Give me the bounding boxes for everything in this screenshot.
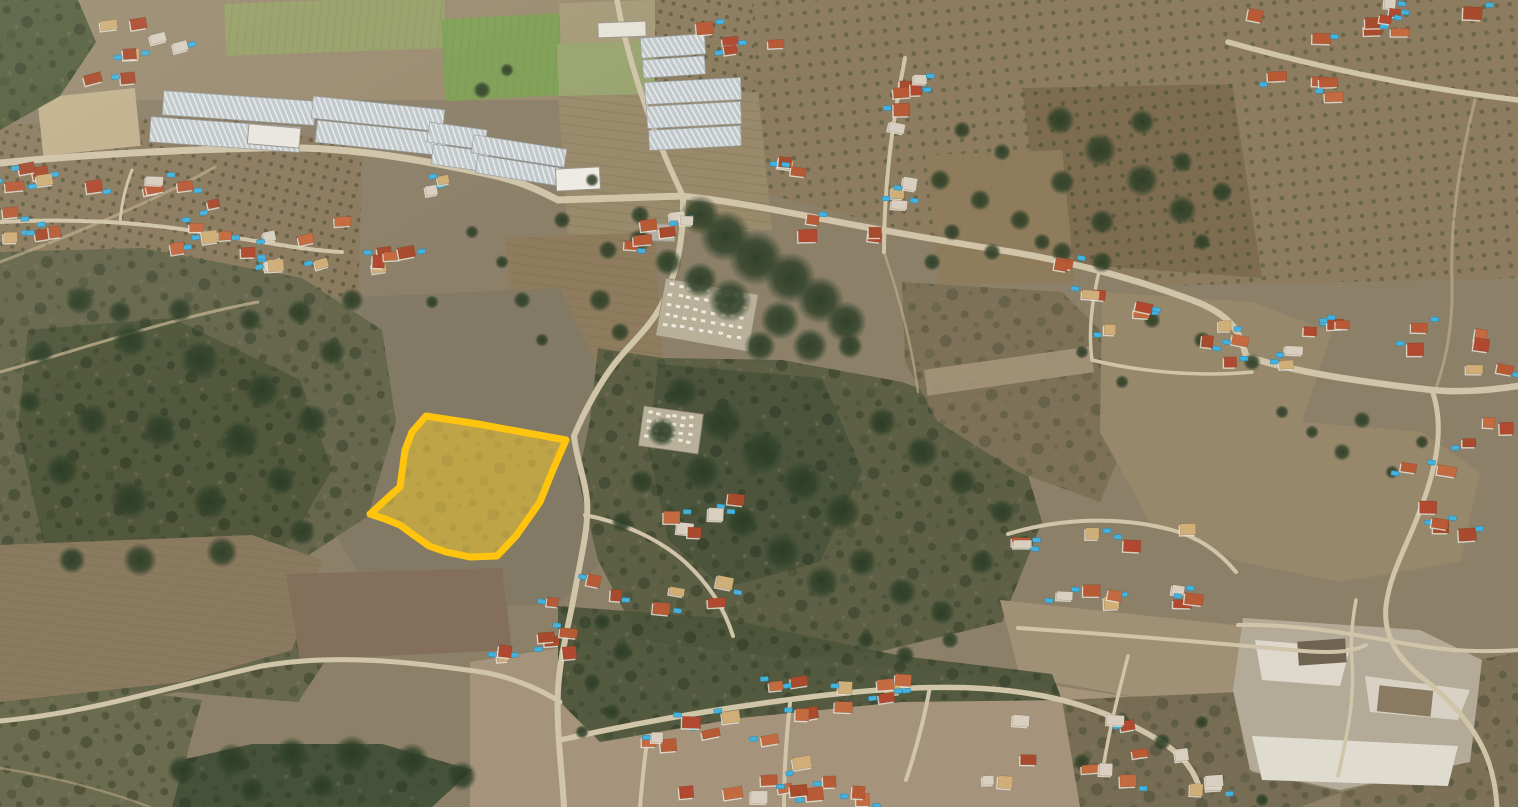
swimming-pool xyxy=(776,784,784,789)
tree-clump xyxy=(1115,375,1129,389)
tree-clump xyxy=(1129,109,1155,135)
tree-clump xyxy=(837,333,863,359)
tree-clump xyxy=(683,453,721,491)
swimming-pool xyxy=(868,696,877,702)
house xyxy=(1204,775,1224,789)
swimming-pool xyxy=(1276,353,1284,358)
tree-clump xyxy=(610,322,630,342)
tree-clump xyxy=(495,255,509,269)
swimming-pool xyxy=(637,248,645,253)
swimming-pool xyxy=(796,797,804,802)
tree-clump xyxy=(513,291,531,309)
swimming-pool xyxy=(1319,318,1327,323)
tree-clump xyxy=(1009,209,1031,231)
swimming-pool xyxy=(1225,791,1233,796)
tree-clump xyxy=(112,322,148,358)
swimming-pool xyxy=(182,218,190,223)
swimming-pool xyxy=(1071,286,1079,291)
house xyxy=(996,775,1013,790)
swimming-pool xyxy=(716,19,724,24)
swimming-pool xyxy=(673,608,681,613)
swimming-pool xyxy=(1486,3,1494,8)
greenhouse xyxy=(644,78,741,105)
swimming-pool xyxy=(1391,471,1400,477)
swimming-pool xyxy=(232,235,240,240)
swimming-pool xyxy=(114,55,122,60)
tree-clump xyxy=(792,328,828,364)
house xyxy=(1019,755,1036,767)
tree-clump xyxy=(588,288,612,312)
farm-building xyxy=(247,124,301,148)
tree-clump xyxy=(333,735,371,773)
tree-clump xyxy=(1333,443,1351,461)
swimming-pool xyxy=(1396,341,1404,346)
swimming-pool xyxy=(21,216,29,221)
swimming-pool xyxy=(738,40,746,45)
swimming-pool xyxy=(840,794,848,799)
tree-clump xyxy=(296,404,328,436)
tree-clump xyxy=(220,420,260,460)
swimming-pool xyxy=(923,87,931,92)
swimming-pool xyxy=(926,74,934,79)
tree-clump xyxy=(629,469,655,495)
tree-clump xyxy=(665,375,699,409)
tree-clump xyxy=(611,641,633,663)
house xyxy=(981,776,994,787)
tree-clump xyxy=(1193,233,1211,251)
house xyxy=(98,19,118,32)
house xyxy=(1011,714,1030,728)
tree-clump xyxy=(30,340,54,364)
house xyxy=(1481,417,1495,429)
house xyxy=(706,598,726,610)
house xyxy=(536,632,555,645)
swimming-pool xyxy=(1103,528,1111,533)
house xyxy=(1052,258,1068,273)
tree-clump xyxy=(1049,169,1075,195)
swimming-pool xyxy=(1045,598,1053,603)
swimming-pool xyxy=(670,221,678,226)
swimming-pool xyxy=(1212,346,1220,351)
tree-clump xyxy=(969,189,991,211)
tree-clump xyxy=(309,773,335,799)
swimming-pool xyxy=(1431,317,1439,322)
tree-clump xyxy=(867,407,897,437)
tree-clump xyxy=(781,461,823,503)
tree-clump xyxy=(340,288,364,312)
house xyxy=(1097,763,1112,777)
tree-clump xyxy=(1075,345,1089,359)
tree-clump xyxy=(857,631,875,649)
tree-clump xyxy=(1195,715,1209,729)
tree-clump xyxy=(1353,411,1371,429)
tree-clump xyxy=(1091,251,1113,273)
tree-clump xyxy=(215,743,249,777)
tree-clump xyxy=(123,543,157,577)
swimming-pool xyxy=(902,688,910,693)
swimming-pool xyxy=(642,735,650,740)
house xyxy=(333,216,351,228)
greenhouse xyxy=(646,102,741,129)
swimming-pool xyxy=(534,647,542,652)
tree-clump xyxy=(180,340,220,380)
tree-clump xyxy=(1083,133,1117,167)
tree-clump xyxy=(895,645,915,665)
tree-clump xyxy=(473,81,491,99)
tree-clump xyxy=(583,673,601,691)
house xyxy=(1418,501,1437,515)
swimming-pool xyxy=(364,250,372,255)
swimming-pool xyxy=(622,597,630,602)
swimming-pool xyxy=(1401,10,1410,16)
swimming-pool xyxy=(782,162,791,167)
tree-clump xyxy=(192,484,228,520)
swimming-pool xyxy=(1330,34,1338,39)
tree-clump xyxy=(1415,435,1429,449)
swimming-pool xyxy=(194,188,202,193)
tree-clump xyxy=(943,223,961,241)
house xyxy=(678,786,695,801)
swimming-pool xyxy=(1032,538,1040,543)
swimming-pool xyxy=(552,623,560,628)
house xyxy=(1105,715,1124,727)
tree-clump xyxy=(593,613,611,631)
tree-clump xyxy=(425,295,439,309)
tree-clump xyxy=(993,143,1011,161)
house xyxy=(638,219,657,234)
tree-clump xyxy=(923,253,941,271)
house xyxy=(686,527,701,539)
swimming-pool xyxy=(111,74,119,79)
tree-clump xyxy=(535,333,549,347)
swimming-pool xyxy=(813,781,821,786)
tree-clump xyxy=(45,453,79,487)
tree-clump xyxy=(598,240,618,260)
tree-clump xyxy=(575,725,589,739)
tree-clump xyxy=(447,761,477,791)
tree-clump xyxy=(1171,151,1193,173)
shed-row xyxy=(598,21,646,38)
tree-clump xyxy=(167,297,193,323)
swimming-pool xyxy=(1427,460,1436,466)
swimming-pool xyxy=(26,230,35,236)
swimming-pool xyxy=(784,708,792,713)
swimming-pool xyxy=(883,106,891,111)
house xyxy=(788,784,808,798)
tree-clump xyxy=(887,577,917,607)
house xyxy=(632,234,653,247)
tree-clump xyxy=(1275,405,1289,419)
swimming-pool xyxy=(103,189,112,195)
house xyxy=(833,701,853,714)
tree-clump xyxy=(318,338,346,366)
swimming-pool xyxy=(1240,356,1248,361)
swimming-pool xyxy=(1174,593,1182,598)
swimming-pool xyxy=(1259,82,1267,87)
house xyxy=(767,39,785,50)
tree-clump xyxy=(929,599,955,625)
swimming-pool xyxy=(167,173,175,178)
tree-clump xyxy=(823,493,861,531)
tree-clump xyxy=(287,299,313,325)
tree-clump xyxy=(1125,163,1159,197)
tree-clump xyxy=(603,703,621,721)
tree-clump xyxy=(701,401,743,443)
swimming-pool xyxy=(1234,327,1242,332)
swimming-pool xyxy=(894,688,902,693)
satellite-map[interactable] xyxy=(0,0,1518,807)
tree-clump xyxy=(239,777,265,803)
tree-clump xyxy=(647,417,677,447)
swimming-pool xyxy=(1139,786,1147,791)
swimming-pool xyxy=(683,510,691,515)
tree-clump xyxy=(947,467,977,497)
swimming-pool xyxy=(538,599,546,604)
tree-clump xyxy=(1045,105,1075,135)
tree-clump xyxy=(1211,181,1233,203)
tree-clump xyxy=(465,225,479,239)
swimming-pool xyxy=(28,184,37,190)
swimming-pool xyxy=(1114,534,1122,539)
house xyxy=(749,791,767,805)
tree-clump xyxy=(1305,425,1319,439)
tree-clump xyxy=(983,243,1001,261)
tree-clump xyxy=(275,737,309,771)
tree-clump xyxy=(108,300,132,324)
swimming-pool xyxy=(1315,89,1323,94)
swimming-pool xyxy=(673,713,681,718)
tree-clump xyxy=(18,390,42,414)
swimming-pool xyxy=(727,509,735,514)
tree-clump xyxy=(1167,195,1197,225)
house xyxy=(658,226,676,239)
greenhouse xyxy=(642,56,705,78)
swimming-pool xyxy=(1072,587,1080,592)
swimming-pool xyxy=(1094,333,1102,338)
tree-clump xyxy=(1089,209,1115,235)
tree-clump xyxy=(1243,353,1261,371)
house xyxy=(1173,748,1189,763)
swimming-pool xyxy=(819,212,828,218)
tree-clump xyxy=(739,429,785,475)
house xyxy=(1498,422,1514,436)
house xyxy=(1471,337,1489,353)
house xyxy=(561,646,577,661)
tree-clump xyxy=(76,404,108,436)
swimming-pool xyxy=(1448,515,1457,521)
swimming-pool xyxy=(1270,359,1278,364)
swimming-pool xyxy=(1394,15,1403,21)
swimming-pool xyxy=(488,652,496,657)
swimming-pool xyxy=(872,804,880,807)
house xyxy=(1318,78,1339,90)
swimming-pool xyxy=(882,196,890,201)
swimming-pool xyxy=(910,198,918,203)
tree-clump xyxy=(395,743,429,777)
swimming-pool xyxy=(1475,526,1483,531)
house xyxy=(1188,783,1203,797)
swimming-pool xyxy=(894,185,903,191)
greenhouse xyxy=(640,34,705,58)
tree-clump xyxy=(989,499,1015,525)
swimming-pool xyxy=(258,255,266,260)
tree-clump xyxy=(553,211,571,229)
tree-clump xyxy=(244,372,280,408)
tree-clump xyxy=(744,330,776,362)
swimming-pool xyxy=(714,708,723,714)
swimming-pool xyxy=(1186,585,1195,591)
swimming-pool xyxy=(37,222,45,227)
tree-clump xyxy=(288,518,316,546)
tree-clump xyxy=(1255,793,1269,807)
tree-clump xyxy=(929,169,951,191)
swimming-pool xyxy=(760,676,768,681)
tree-clump xyxy=(1033,233,1051,251)
terrain-layer xyxy=(0,0,1518,807)
tree-clump xyxy=(110,480,150,520)
tree-clump xyxy=(65,285,95,315)
tree-clump xyxy=(654,248,682,276)
tree-clump xyxy=(969,549,995,575)
tree-clump xyxy=(238,308,262,332)
tree-clump xyxy=(500,63,514,77)
tree-clump xyxy=(167,755,197,785)
swimming-pool xyxy=(183,244,192,250)
tree-clump xyxy=(585,173,599,187)
swimming-pool xyxy=(1451,446,1459,451)
satellite-map-view xyxy=(0,0,1518,807)
tree-clump xyxy=(805,565,839,599)
tree-clump xyxy=(905,435,939,469)
house xyxy=(1465,365,1483,376)
field-bottomleft-red xyxy=(286,568,512,660)
swimming-pool xyxy=(141,50,149,55)
swimming-pool xyxy=(783,683,792,689)
swimming-pool xyxy=(0,178,2,183)
swimming-pool xyxy=(831,683,839,688)
tree-clump xyxy=(58,546,86,574)
swimming-pool xyxy=(1327,315,1335,320)
tree-clump xyxy=(264,464,296,496)
house xyxy=(1179,523,1196,536)
tree-clump xyxy=(847,547,877,577)
tree-clump xyxy=(763,533,801,571)
swimming-pool xyxy=(715,50,724,56)
tree-clump xyxy=(682,262,718,298)
house xyxy=(797,229,817,243)
tree-clump xyxy=(953,121,971,139)
tree-clump xyxy=(206,536,238,568)
tree-clump xyxy=(611,511,633,533)
swimming-pool xyxy=(192,235,201,241)
house xyxy=(867,227,881,239)
tree-clump xyxy=(142,412,178,448)
swimming-pool xyxy=(1398,1,1406,6)
tree-clump xyxy=(941,631,959,649)
tree-clump xyxy=(1153,733,1171,751)
